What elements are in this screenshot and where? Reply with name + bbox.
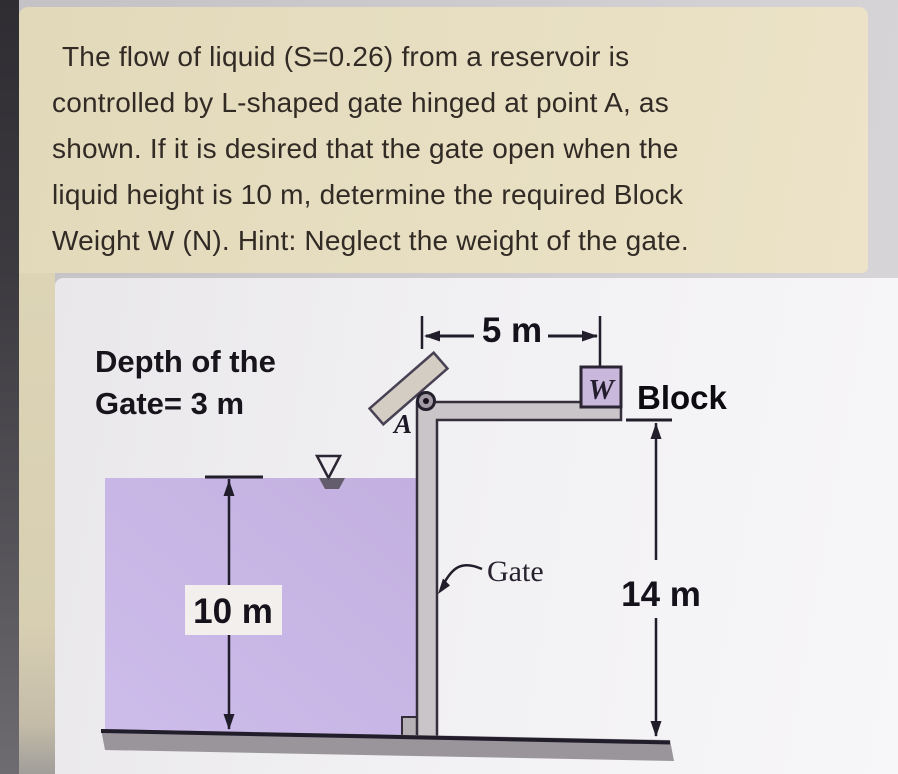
arrow-leader-icon <box>438 579 450 595</box>
gate-label: Gate <box>487 555 544 588</box>
top-width-dim-label: 5 m <box>482 311 542 350</box>
liquid-height-dim-label: 10 m <box>193 592 273 631</box>
weight-symbol-label: W <box>588 374 616 406</box>
hinge-point-label: A <box>392 409 412 439</box>
arrow-down-icon <box>651 721 662 737</box>
arrow-right-icon <box>582 331 598 342</box>
depth-note-line1: Depth of the <box>95 344 276 379</box>
arrow-up-icon <box>651 423 662 439</box>
gate-diagram: 10 m A 5 m W Block 14 m <box>0 0 898 774</box>
arrow-left-icon <box>424 331 440 342</box>
screenshot-page: The flow of liquid (S=0.26) from a reser… <box>0 0 898 774</box>
right-height-dim-label: 14 m <box>621 575 701 614</box>
water-surface-icon <box>317 456 340 478</box>
depth-note-line2: Gate= 3 m <box>95 386 244 421</box>
hinge-pin-center <box>423 398 429 404</box>
block-label: Block <box>637 379 728 416</box>
